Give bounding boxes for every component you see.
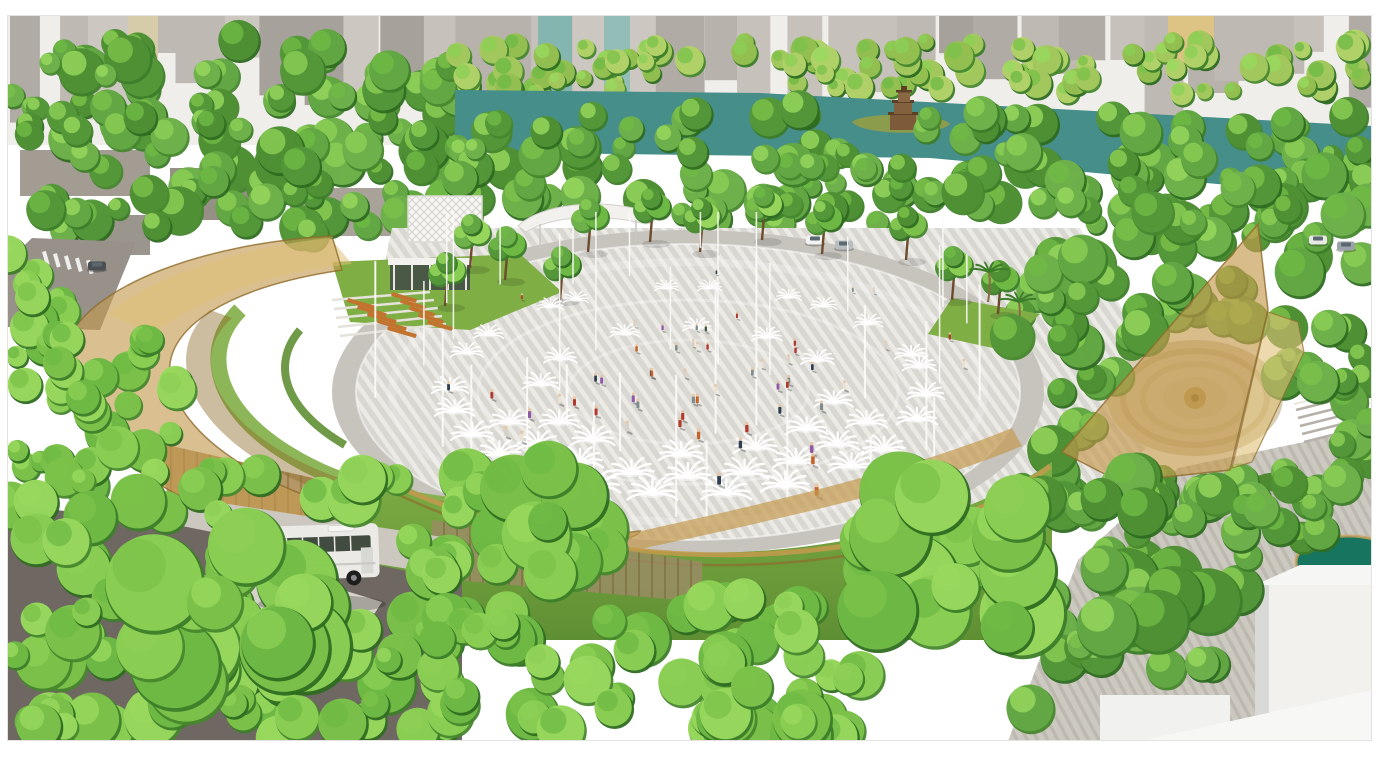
tree-canopy-highlight	[181, 469, 205, 493]
person	[697, 432, 700, 440]
tree-canopy-highlight	[1295, 42, 1304, 51]
tree-canopy-highlight	[1314, 312, 1333, 331]
tree-canopy-highlight	[383, 198, 404, 219]
white-cube-building	[1255, 565, 1372, 715]
tree-canopy-highlight	[550, 73, 559, 82]
tree-canopy-highlight	[945, 173, 968, 196]
person-head	[873, 287, 875, 289]
tree-canopy-highlight	[1352, 164, 1373, 185]
person	[794, 341, 796, 347]
car-window	[810, 237, 820, 241]
tree-canopy-highlight	[1057, 187, 1074, 204]
tree-canopy-highlight	[1226, 83, 1235, 92]
tree-canopy-highlight	[1010, 71, 1022, 83]
tree-canopy-highlight	[1228, 115, 1247, 134]
tree-canopy-highlight	[930, 77, 944, 91]
tree-canopy-highlight	[372, 52, 394, 74]
tree-canopy-highlight	[813, 47, 829, 63]
tree-canopy-highlight	[1034, 47, 1050, 63]
tree-canopy-highlight	[455, 64, 470, 79]
person-head	[626, 421, 629, 424]
person-head	[490, 389, 493, 392]
tree-canopy-highlight	[99, 428, 122, 451]
tree-canopy-highlight	[1273, 467, 1293, 487]
tree-canopy-highlight	[1302, 495, 1316, 509]
tree-canopy-highlight	[487, 111, 501, 125]
person	[777, 383, 780, 390]
tree-canopy-highlight	[919, 34, 928, 43]
person	[736, 313, 738, 318]
person	[692, 396, 695, 403]
tree-canopy-highlight	[985, 604, 1013, 632]
tree-canopy-highlight	[278, 697, 302, 721]
tree-canopy-highlight	[704, 691, 732, 719]
person-head	[632, 393, 635, 396]
tree-canopy-highlight	[837, 144, 850, 157]
tree-canopy-highlight	[989, 478, 1025, 514]
tree-canopy-highlight	[1175, 504, 1193, 522]
tree-canopy-highlight	[894, 38, 909, 53]
tree-canopy-highlight	[1068, 283, 1085, 300]
tree-canopy-highlight	[861, 57, 873, 69]
person	[787, 357, 790, 363]
tree-canopy-highlight	[525, 443, 556, 474]
tree-canopy-highlight	[46, 520, 72, 546]
tree-canopy-highlight	[242, 456, 264, 478]
tree-canopy-highlight	[198, 111, 214, 127]
person	[852, 288, 854, 292]
tree-canopy-highlight	[1110, 150, 1127, 167]
tree-canopy-highlight	[422, 623, 441, 642]
person-head	[696, 394, 699, 397]
tree-canopy-highlight	[1188, 648, 1207, 667]
tree-canopy-highlight	[214, 512, 256, 554]
tree-shadow	[580, 250, 608, 258]
tree-canopy-highlight	[1099, 103, 1117, 121]
person	[761, 361, 764, 367]
tree-canopy-highlight	[1347, 137, 1362, 152]
tree-canopy-highlight	[480, 546, 502, 568]
person	[600, 377, 603, 383]
tree-canopy-highlight	[74, 599, 90, 615]
tree-canopy-highlight	[1246, 493, 1265, 512]
tree-canopy-highlight	[1050, 325, 1067, 342]
tree-canopy-highlight	[1358, 409, 1373, 424]
person	[696, 344, 698, 350]
tree-canopy-highlight	[425, 558, 446, 579]
tree-canopy-highlight	[83, 360, 104, 381]
tree-canopy-highlight	[406, 151, 425, 170]
tree-canopy-highlight	[1125, 310, 1151, 336]
person	[716, 270, 718, 274]
person-head	[787, 354, 790, 357]
tree-canopy-highlight	[330, 83, 345, 98]
tree-canopy-highlight	[283, 51, 307, 75]
tree-canopy-highlight	[835, 664, 852, 681]
tree-canopy-highlight	[553, 247, 564, 258]
tree-canopy-highlight	[662, 661, 688, 687]
tree-canopy-highlight	[577, 71, 586, 80]
person	[684, 371, 687, 377]
tree-canopy-highlight	[1081, 599, 1114, 632]
tree-canopy-highlight	[792, 38, 807, 53]
tree-canopy-highlight	[45, 348, 62, 365]
tree-canopy-highlight	[677, 48, 693, 64]
person	[626, 423, 629, 431]
tree-canopy-highlight	[935, 566, 961, 592]
tree-canopy-highlight	[200, 167, 217, 184]
person	[714, 387, 717, 394]
tree-canopy-highlight	[1324, 465, 1346, 487]
tree-canopy-highlight	[55, 40, 68, 53]
tree-canopy-highlight	[363, 691, 378, 706]
tree-canopy-highlight	[734, 668, 757, 691]
tree-canopy-highlight	[946, 43, 962, 59]
tree-shadow	[814, 252, 842, 260]
tree-canopy-highlight	[855, 498, 899, 542]
person-head	[651, 368, 654, 371]
person-head	[696, 323, 698, 325]
person	[528, 411, 531, 418]
tree-canopy-highlight	[342, 457, 368, 483]
tree-canopy-highlight	[783, 705, 802, 724]
tree-shadow	[944, 298, 972, 306]
tree-canopy-highlight	[191, 94, 204, 107]
person-head	[778, 404, 781, 407]
tree-canopy-highlight	[1273, 108, 1291, 126]
tree-shadow	[898, 258, 926, 266]
tree-canopy-highlight	[247, 610, 286, 649]
tree-canopy-highlight	[303, 479, 327, 503]
tree-shadow	[437, 304, 465, 312]
person-head	[573, 396, 576, 399]
tree-canopy-highlight	[785, 54, 798, 67]
person	[786, 382, 789, 389]
person	[820, 403, 823, 410]
tree-canopy-highlight	[451, 140, 464, 153]
person	[635, 346, 638, 352]
tree-canopy-highlight	[49, 102, 66, 119]
person-head	[706, 342, 708, 344]
tree-canopy-highlight	[945, 247, 956, 258]
tree-canopy-highlight	[1278, 250, 1305, 277]
tree-canopy-highlight	[777, 611, 801, 635]
tree-canopy-highlight	[1165, 33, 1175, 43]
tree-canopy-highlight	[868, 212, 880, 224]
tree-canopy-highlight	[800, 154, 814, 168]
car-window	[1313, 237, 1323, 241]
tree-canopy-highlight	[1299, 77, 1309, 87]
tree-canopy-highlight	[1197, 84, 1206, 93]
person-head	[661, 323, 663, 325]
person-head	[739, 438, 742, 441]
car-window	[92, 263, 102, 267]
tree-canopy-highlight	[72, 470, 85, 483]
tree-canopy-highlight	[1010, 687, 1036, 713]
tree-canopy-highlight	[260, 129, 286, 155]
person	[651, 371, 654, 377]
tree-canopy-highlight	[563, 178, 584, 199]
tree-canopy-highlight	[8, 347, 20, 359]
tree-canopy-highlight	[1185, 46, 1198, 59]
tree-canopy-highlight	[1124, 45, 1135, 56]
person-head	[751, 367, 754, 370]
person-head	[815, 483, 819, 487]
person	[885, 343, 887, 349]
tree-canopy-highlight	[578, 40, 588, 50]
person-head	[520, 430, 523, 433]
person-head	[521, 293, 523, 295]
person-head	[717, 472, 721, 476]
tree-canopy-highlight	[399, 525, 418, 544]
person-head	[843, 380, 846, 383]
tree-canopy-highlight	[251, 185, 271, 205]
tree-canopy-highlight	[377, 648, 391, 662]
tree-canopy-highlight	[1134, 193, 1157, 216]
tree-canopy-highlight	[1242, 54, 1258, 70]
person	[962, 361, 965, 367]
tree-canopy-highlight	[993, 316, 1017, 340]
tree-canopy-highlight	[533, 118, 550, 135]
tree-canopy-highlight	[1275, 196, 1290, 211]
tree-canopy-highlight	[17, 122, 32, 137]
tree-canopy-highlight	[528, 550, 557, 579]
person-head	[786, 379, 789, 382]
tree-canopy-highlight	[952, 124, 969, 141]
person	[661, 325, 663, 330]
person-head	[675, 343, 677, 345]
tree-canopy-highlight	[1123, 114, 1146, 137]
tree-canopy-highlight	[8, 441, 20, 453]
person	[810, 445, 814, 453]
tree-canopy-highlight	[727, 580, 749, 602]
tree-canopy-highlight	[1308, 62, 1324, 78]
tree-canopy-highlight	[400, 710, 423, 733]
person-head	[745, 422, 748, 425]
tree-canopy-highlight	[1084, 480, 1107, 503]
person	[739, 441, 742, 449]
tree-canopy-highlight	[133, 177, 154, 198]
tree-shadow	[497, 278, 525, 286]
person	[595, 408, 598, 415]
person	[573, 399, 576, 406]
tree-canopy-highlight	[772, 51, 782, 61]
person	[681, 413, 684, 420]
tree-canopy-highlight	[284, 148, 305, 169]
tree-canopy-highlight	[41, 54, 52, 65]
tree-canopy-highlight	[687, 583, 715, 611]
person-head	[696, 342, 698, 344]
tree-canopy-highlight	[753, 146, 768, 161]
tree-canopy-highlight	[27, 98, 39, 110]
tree-canopy-highlight	[1013, 38, 1026, 51]
person-head	[736, 312, 738, 314]
tree-canopy-highlight	[93, 91, 112, 110]
tree-canopy-highlight	[345, 132, 367, 154]
tree-canopy-highlight	[48, 459, 69, 480]
tree-canopy-highlight	[638, 54, 647, 63]
tree-canopy-highlight	[755, 187, 766, 198]
person-head	[600, 375, 603, 378]
car-window	[1341, 243, 1351, 247]
tree-canopy-highlight	[105, 113, 126, 134]
person-head	[595, 405, 598, 408]
person	[778, 407, 781, 414]
tree-canopy-highlight	[1084, 548, 1109, 573]
person	[558, 396, 561, 403]
tree-canopy-highlight	[464, 614, 483, 633]
person-head	[681, 410, 684, 413]
person-head	[787, 375, 790, 378]
person	[504, 429, 507, 437]
person	[717, 476, 721, 485]
tree-canopy-highlight	[322, 701, 349, 728]
tree-canopy-highlight	[817, 65, 827, 75]
tree-canopy-highlight	[115, 477, 145, 507]
tree-canopy-highlight	[1120, 177, 1137, 194]
tree-canopy-highlight	[206, 502, 221, 517]
tree-canopy-highlight	[815, 201, 826, 212]
person	[490, 392, 493, 399]
tree-canopy-highlight	[481, 37, 496, 52]
person	[675, 345, 678, 351]
tree-canopy-highlight	[597, 691, 618, 712]
tree-canopy-highlight	[1300, 363, 1323, 386]
person-head	[963, 359, 966, 362]
tree-canopy-highlight	[17, 482, 41, 506]
tree-canopy-highlight	[1121, 490, 1148, 517]
tree-canopy-highlight	[679, 138, 696, 155]
person-head	[761, 359, 764, 362]
rendering-frame	[0, 0, 1390, 757]
person	[706, 344, 708, 350]
tree-canopy-highlight	[1189, 32, 1203, 46]
tree-canopy-highlight	[20, 706, 45, 731]
tree-canopy-highlight	[108, 38, 133, 63]
tree-canopy-highlight	[495, 58, 511, 74]
person-head	[528, 408, 531, 411]
tree-canopy-highlight	[298, 220, 316, 238]
tree-canopy-highlight	[1352, 68, 1363, 79]
tree-canopy-highlight	[23, 604, 41, 622]
tree-canopy-highlight	[52, 324, 71, 343]
tree-canopy-highlight	[1183, 143, 1203, 163]
tree-canopy-highlight	[126, 103, 144, 121]
person-head	[852, 286, 854, 288]
tree-canopy-highlight	[581, 103, 596, 118]
tree-canopy-highlight	[1048, 162, 1070, 184]
tree-canopy-highlight	[890, 155, 905, 170]
tree-canopy-highlight	[67, 494, 96, 523]
tree-canopy-highlight	[858, 40, 870, 52]
tree-canopy-highlight	[1171, 126, 1190, 145]
person	[751, 370, 754, 376]
tree-canopy-highlight	[232, 207, 250, 225]
tree-canopy-highlight	[581, 199, 592, 210]
tree-canopy-highlight	[68, 382, 87, 401]
tree-canopy-highlight	[567, 658, 593, 684]
tree-canopy-highlight	[1167, 60, 1178, 71]
tree-canopy-highlight	[161, 423, 173, 435]
person-head	[885, 341, 887, 343]
person	[873, 289, 875, 293]
tree-canopy-highlight	[843, 575, 886, 618]
tree-canopy-highlight	[116, 393, 131, 408]
person-head	[811, 453, 815, 457]
person	[594, 375, 597, 381]
tree-canopy-highlight	[920, 108, 932, 120]
tree-canopy-highlight	[606, 79, 617, 90]
person	[843, 383, 846, 390]
person-head	[716, 269, 718, 271]
tree-canopy-highlight	[444, 496, 462, 514]
person-head	[447, 381, 450, 384]
tree-canopy-highlight	[604, 155, 620, 171]
tree-canopy-highlight	[607, 51, 620, 64]
tree-canopy-highlight	[1198, 474, 1221, 497]
tree-canopy-highlight	[1004, 61, 1015, 72]
tree-canopy-highlight	[1324, 195, 1348, 219]
tree-canopy-highlight	[528, 646, 546, 664]
tree-canopy-highlight	[621, 117, 635, 131]
tree-canopy-highlight	[706, 643, 729, 666]
tree-canopy-highlight	[924, 182, 937, 195]
tree-canopy-highlight	[1338, 34, 1354, 50]
person	[811, 456, 815, 464]
tree-canopy-highlight	[693, 199, 704, 210]
tree-canopy-highlight	[1182, 211, 1196, 225]
person-head	[636, 399, 639, 402]
tree-canopy-highlight	[29, 192, 50, 213]
person-head	[949, 332, 951, 334]
tree-canopy-highlight	[18, 282, 37, 301]
tree-canopy-highlight	[485, 458, 521, 494]
tree-shadow	[642, 240, 670, 248]
person-shadow	[716, 275, 719, 276]
tree-canopy-highlight	[1077, 67, 1091, 81]
tree-canopy-highlight	[899, 207, 910, 218]
tree-canopy-highlight	[856, 159, 868, 171]
tree-canopy-highlight	[448, 44, 461, 57]
person-head	[714, 384, 717, 387]
tree-canopy-highlight	[1350, 345, 1364, 359]
tree-canopy-highlight	[279, 577, 310, 608]
tree-canopy-highlight	[657, 126, 672, 141]
person-head	[692, 339, 694, 341]
tree-canopy-highlight	[138, 327, 153, 342]
tree-canopy-highlight	[647, 36, 659, 48]
person-head	[634, 319, 636, 321]
tree-canopy-highlight	[466, 139, 477, 150]
person	[696, 396, 699, 403]
tree-canopy-highlight	[269, 85, 284, 100]
tree-canopy-highlight	[1061, 237, 1087, 263]
person-head	[504, 426, 507, 429]
person	[949, 334, 951, 339]
person-head	[811, 362, 814, 365]
tree-canopy-highlight	[682, 99, 700, 117]
person	[634, 321, 636, 326]
tree-canopy-highlight	[311, 31, 331, 51]
tree-canopy-highlight	[497, 75, 511, 89]
tree-canopy-highlight	[144, 213, 160, 229]
person	[520, 433, 523, 441]
tree-canopy-highlight	[1172, 83, 1185, 96]
tree-canopy-highlight	[882, 77, 893, 88]
tree-canopy-highlight	[1030, 189, 1046, 205]
person	[811, 364, 814, 370]
tree-canopy-highlight	[498, 227, 509, 238]
